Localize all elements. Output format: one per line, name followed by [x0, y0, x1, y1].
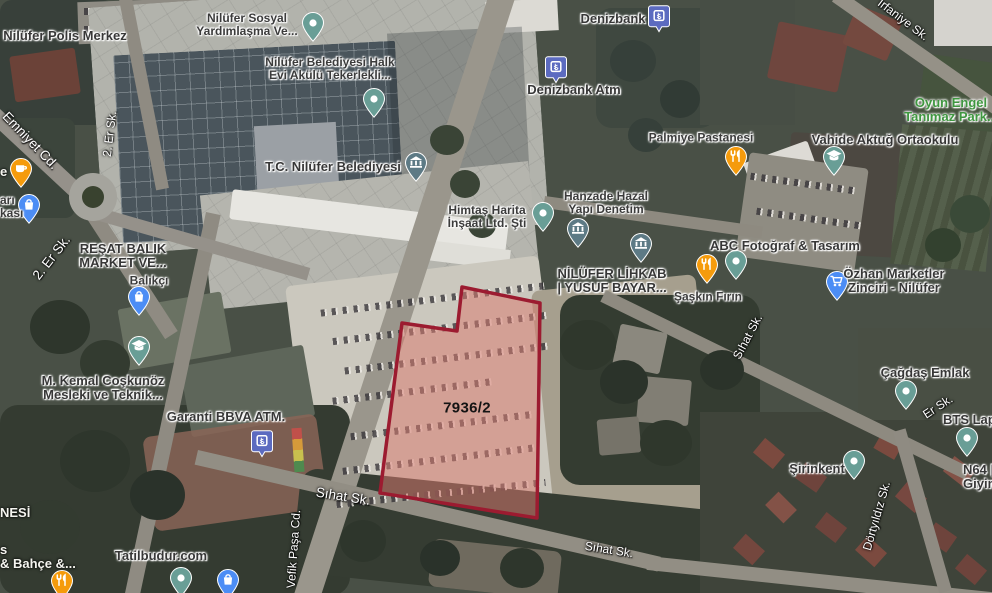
- bahce-food-pin[interactable]: [51, 570, 73, 593]
- nilufer-sosyal-label[interactable]: Nilüfer SosyalYardımlaşma Ve...: [196, 12, 297, 38]
- vahide-pin[interactable]: [823, 146, 845, 176]
- partial-e-label[interactable]: e: [0, 165, 7, 179]
- tc-nilufer-belediyesi-line1: T.C. Nilüfer Belediyesi: [265, 160, 401, 174]
- parcel-number-label: 7936/2: [443, 400, 491, 417]
- n64-giyim-line1: N64 |: [963, 463, 992, 477]
- vahide-aktug-ortaokulu-label[interactable]: Vahide Aktuğ Ortaokulu: [812, 133, 959, 147]
- tatilbudur-line1: Tatilbudur.com: [115, 549, 207, 563]
- hanzade-hazal-line2: Yapı Denetim: [564, 203, 648, 216]
- nilufer-polis-merkez-line1: Nilüfer Polis Merkez: [3, 29, 127, 43]
- denizbank-atm-label[interactable]: Denizbank Atm: [527, 83, 620, 97]
- cagdas-emlak-line1: Çağdaş Emlak: [881, 366, 970, 380]
- himtas-harita-line1: Himtaş Harita: [448, 204, 527, 217]
- partial-nesi-line1: NESİ: [0, 506, 30, 520]
- himtas-harita-line2: İnşaat Ltd. Şti: [448, 217, 527, 230]
- denizbank-pin[interactable]: [648, 5, 670, 35]
- denizbank-line1: Denizbank: [580, 12, 645, 26]
- ozhan-marketler-label[interactable]: Özhan MarketlerZinciri - Nilüfer: [843, 267, 944, 295]
- himtas-harita-label[interactable]: Himtaş Haritaİnşaat Ltd. Şti: [448, 204, 527, 230]
- tatilbudur-pin[interactable]: [170, 567, 192, 593]
- bts-lap-line1: BTS Lap: [943, 413, 992, 427]
- cagdas-emlak-label[interactable]: Çağdaş Emlak: [881, 366, 970, 380]
- nilufer-lihkab-line2: | YUSUF BAYAR...: [557, 281, 666, 295]
- partial-bahce-label[interactable]: s& Bahçe &...: [0, 543, 76, 571]
- garanti-bbva-atm-label[interactable]: Garanti BBVA ATM.: [167, 410, 285, 424]
- halk-evi-pin[interactable]: [363, 88, 385, 118]
- bts-n64-pin[interactable]: [956, 427, 978, 457]
- saskin-firin-pin[interactable]: [696, 254, 718, 284]
- nilufer-sosyal-pin[interactable]: [302, 12, 324, 42]
- partial-ari-kasi-line1: arı: [0, 194, 23, 207]
- bts-lap-label[interactable]: BTS Lap: [943, 413, 992, 427]
- nilufer-polis-merkez-label[interactable]: Nilüfer Polis Merkez: [3, 29, 127, 43]
- denizbank-label[interactable]: Denizbank: [580, 12, 645, 26]
- sirinkent-pin[interactable]: [843, 450, 865, 480]
- balikci-line1: Balıkçı: [130, 275, 169, 288]
- belediyesi-halk-evi-label[interactable]: Nilüfer Belediyesi HalkEvi Akülü Tekerle…: [265, 56, 394, 82]
- tatilbudur-label[interactable]: Tatilbudur.com: [115, 549, 207, 563]
- denizbank-atm-line1: Denizbank Atm: [527, 83, 620, 97]
- ozhan-marketler-line2: Zinciri - Nilüfer: [843, 281, 944, 295]
- belediyesi-halk-evi-line1: Nilüfer Belediyesi Halk: [265, 56, 394, 69]
- ozhan-marketler-line1: Özhan Marketler: [843, 267, 944, 281]
- m-kemal-coskunoz-label[interactable]: M. Kemal CoşkunözMesleki ve Teknik...: [42, 374, 165, 402]
- coffee-pin[interactable]: [10, 158, 32, 188]
- sirinkent-line1: Şirinkent: [789, 462, 845, 476]
- balikci-label[interactable]: Balıkçı: [130, 275, 169, 288]
- nilufer-sosyal-line2: Yardımlaşma Ve...: [196, 25, 297, 38]
- nilufer-lihkab-label[interactable]: NİLÜFER LİHKAB| YUSUF BAYAR...: [557, 267, 666, 295]
- vahide-aktug-ortaokulu-line1: Vahide Aktuğ Ortaokulu: [812, 133, 959, 147]
- himtas-pin[interactable]: [532, 202, 554, 232]
- abc-fotograf-line1: ABC Fotoğraf & Tasarım: [710, 239, 860, 253]
- hanzade-hazal-label[interactable]: Hanzade HazalYapı Denetim: [564, 190, 648, 216]
- tc-nilufer-belediyesi-label[interactable]: T.C. Nilüfer Belediyesi: [265, 160, 401, 174]
- garanti-pin[interactable]: [251, 430, 273, 460]
- resat-balik-market-line1: REŞAT BALIK: [79, 242, 166, 256]
- hanzade-hazal-line1: Hanzade Hazal: [564, 190, 648, 203]
- partial-bahce-line2: & Bahçe &...: [0, 557, 76, 571]
- lihkab-pin[interactable]: [630, 233, 652, 263]
- n64-giyim-label[interactable]: N64 |Giyim: [963, 463, 992, 491]
- abc-fotograf-label[interactable]: ABC Fotoğraf & Tasarım: [710, 239, 860, 253]
- oyun-engel-tanimaz-park-line1: Oyun Engel: [904, 96, 992, 110]
- garanti-bbva-atm-line1: Garanti BBVA ATM.: [167, 410, 285, 424]
- belediyesi-halk-evi-line2: Evi Akülü Tekerlekli...: [265, 69, 394, 82]
- partial-ari-kasi-label[interactable]: arıkası: [0, 194, 23, 220]
- palmiye-pastanesi-label[interactable]: Palmiye Pastanesi: [649, 132, 754, 145]
- saskin-firin-line1: Şaşkın Fırın: [674, 291, 742, 304]
- partial-e-line1: e: [0, 165, 7, 179]
- partial-ari-kasi-line2: kası: [0, 207, 23, 220]
- tatilbudur-bag-pin[interactable]: [217, 569, 239, 593]
- palmiye-pin[interactable]: [725, 146, 747, 176]
- palmiye-pastanesi-line1: Palmiye Pastanesi: [649, 132, 754, 145]
- nilufer-lihkab-line1: NİLÜFER LİHKAB: [557, 267, 666, 281]
- partial-bahce-line1: s: [0, 543, 76, 557]
- resat-balik-market-label[interactable]: REŞAT BALIKMARKET VE...: [79, 242, 166, 270]
- tc-belediyesi-pin[interactable]: [405, 152, 427, 182]
- saskin-firin-label[interactable]: Şaşkın Fırın: [674, 291, 742, 304]
- balikci-bag-pin[interactable]: [128, 286, 150, 316]
- m-kemal-coskunoz-line2: Mesleki ve Teknik...: [42, 388, 165, 402]
- hanzade-pin[interactable]: [567, 218, 589, 248]
- nilufer-sosyal-line1: Nilüfer Sosyal: [196, 12, 297, 25]
- oyun-engel-tanimaz-park-label[interactable]: Oyun EngelTanımaz Park...: [904, 96, 992, 124]
- cagdas-pin[interactable]: [895, 380, 917, 410]
- abc-fotograf-pin[interactable]: [725, 250, 747, 280]
- m-kemal-pin[interactable]: [128, 336, 150, 366]
- sirinkent-label[interactable]: Şirinkent: [789, 462, 845, 476]
- m-kemal-coskunoz-line1: M. Kemal Coşkunöz: [42, 374, 165, 388]
- n64-giyim-line2: Giyim: [963, 477, 992, 491]
- partial-nesi-label[interactable]: NESİ: [0, 506, 30, 520]
- oyun-engel-tanimaz-park-line2: Tanımaz Park...: [904, 110, 992, 124]
- satellite-map[interactable]: 7936/2 Nilüfer Polis MerkezNilüfer Sosya…: [0, 0, 992, 593]
- resat-balik-market-line2: MARKET VE...: [79, 256, 166, 270]
